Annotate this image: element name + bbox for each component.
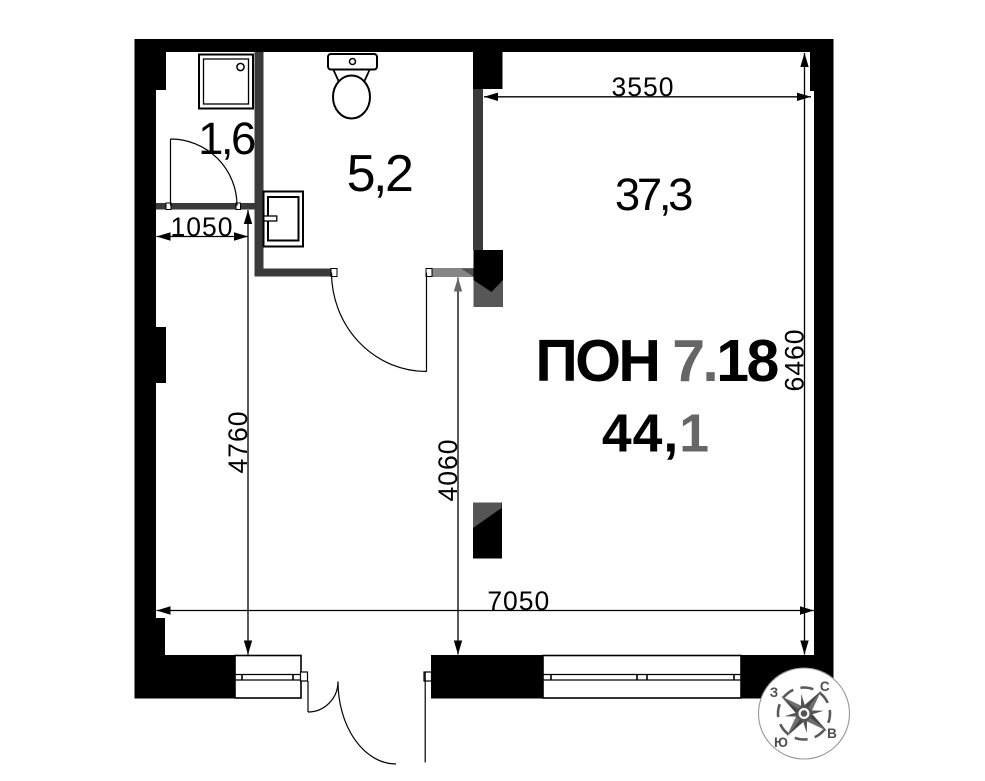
- svg-text:3550: 3550: [612, 72, 675, 102]
- svg-text:С: С: [820, 679, 830, 694]
- svg-text:З: З: [770, 685, 778, 700]
- svg-text:4060: 4060: [433, 439, 463, 502]
- svg-text:1,6: 1,6: [198, 113, 255, 164]
- svg-text:В: В: [827, 726, 837, 741]
- svg-text:4760: 4760: [223, 411, 253, 474]
- svg-text:Ю: Ю: [774, 735, 788, 750]
- svg-text:7050: 7050: [487, 586, 550, 616]
- svg-text:6460: 6460: [780, 329, 810, 392]
- svg-text:5,2: 5,2: [347, 145, 412, 203]
- svg-text:1050: 1050: [171, 212, 234, 242]
- svg-text:44,1: 44,1: [602, 405, 710, 464]
- svg-text:37,3: 37,3: [615, 169, 692, 220]
- svg-text:ПОН 7.18: ПОН 7.18: [535, 328, 777, 394]
